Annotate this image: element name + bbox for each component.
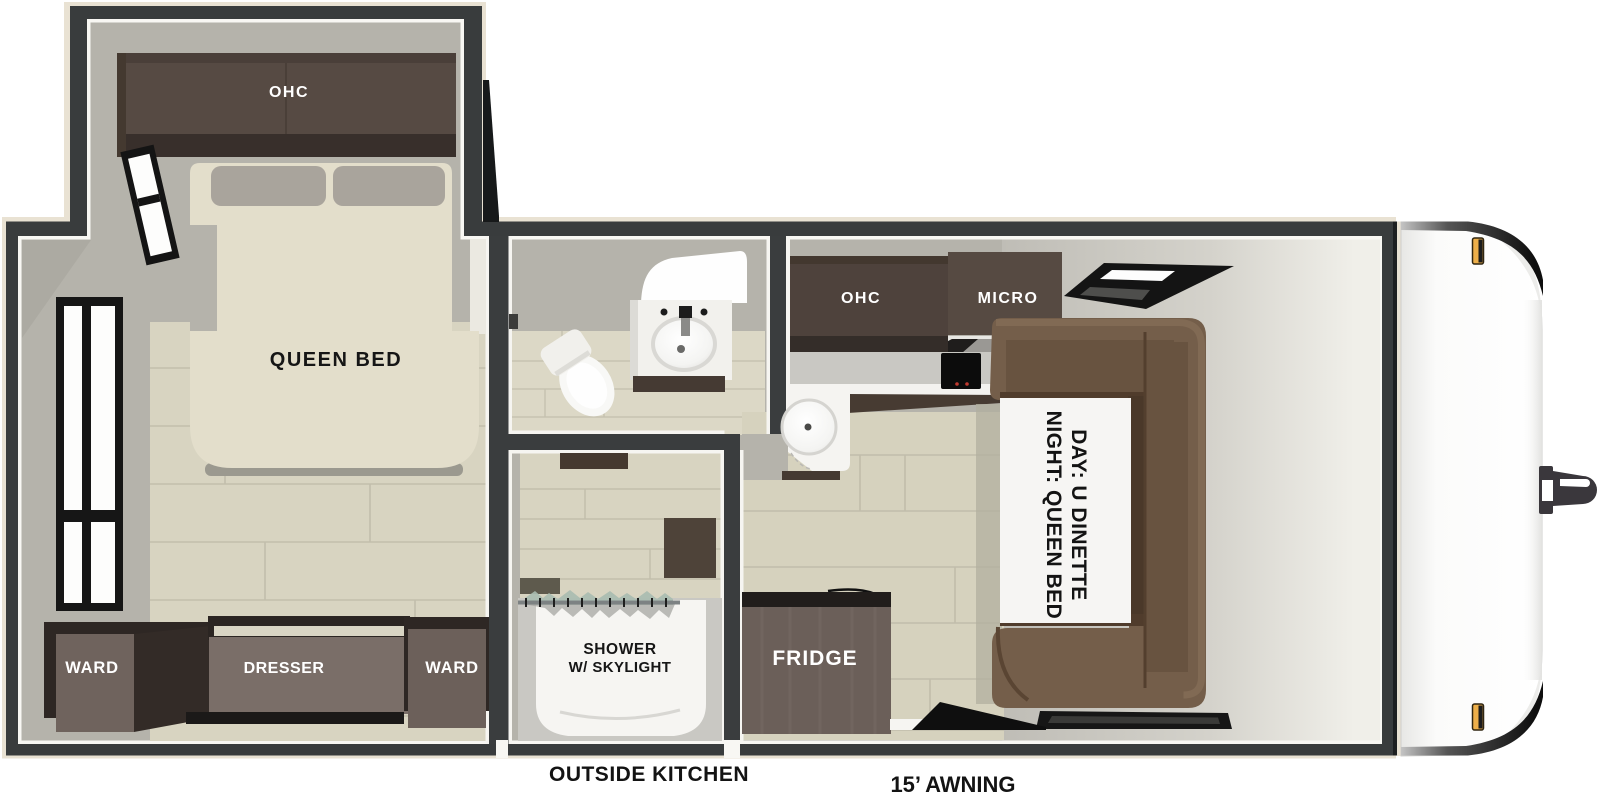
svg-text:NIGHT: QUEEN BED: NIGHT: QUEEN BED — [1042, 411, 1065, 620]
svg-text:QUEEN BED: QUEEN BED — [270, 349, 402, 371]
svg-text:OHC: OHC — [841, 290, 881, 307]
svg-text:OHC: OHC — [269, 84, 309, 101]
svg-text:SHOWER: SHOWER — [583, 641, 656, 658]
svg-text:WARD: WARD — [425, 659, 479, 677]
svg-text:FRIDGE: FRIDGE — [772, 647, 857, 670]
svg-text:W/ SKYLIGHT: W/ SKYLIGHT — [569, 659, 672, 676]
svg-text:15’ AWNING: 15’ AWNING — [890, 772, 1015, 796]
svg-text:DRESSER: DRESSER — [244, 660, 325, 677]
svg-text:MICRO: MICRO — [978, 290, 1039, 307]
svg-text:OUTSIDE KITCHEN: OUTSIDE KITCHEN — [549, 763, 749, 786]
svg-text:DAY: U DINETTE: DAY: U DINETTE — [1067, 429, 1090, 601]
svg-text:WARD: WARD — [65, 659, 119, 677]
